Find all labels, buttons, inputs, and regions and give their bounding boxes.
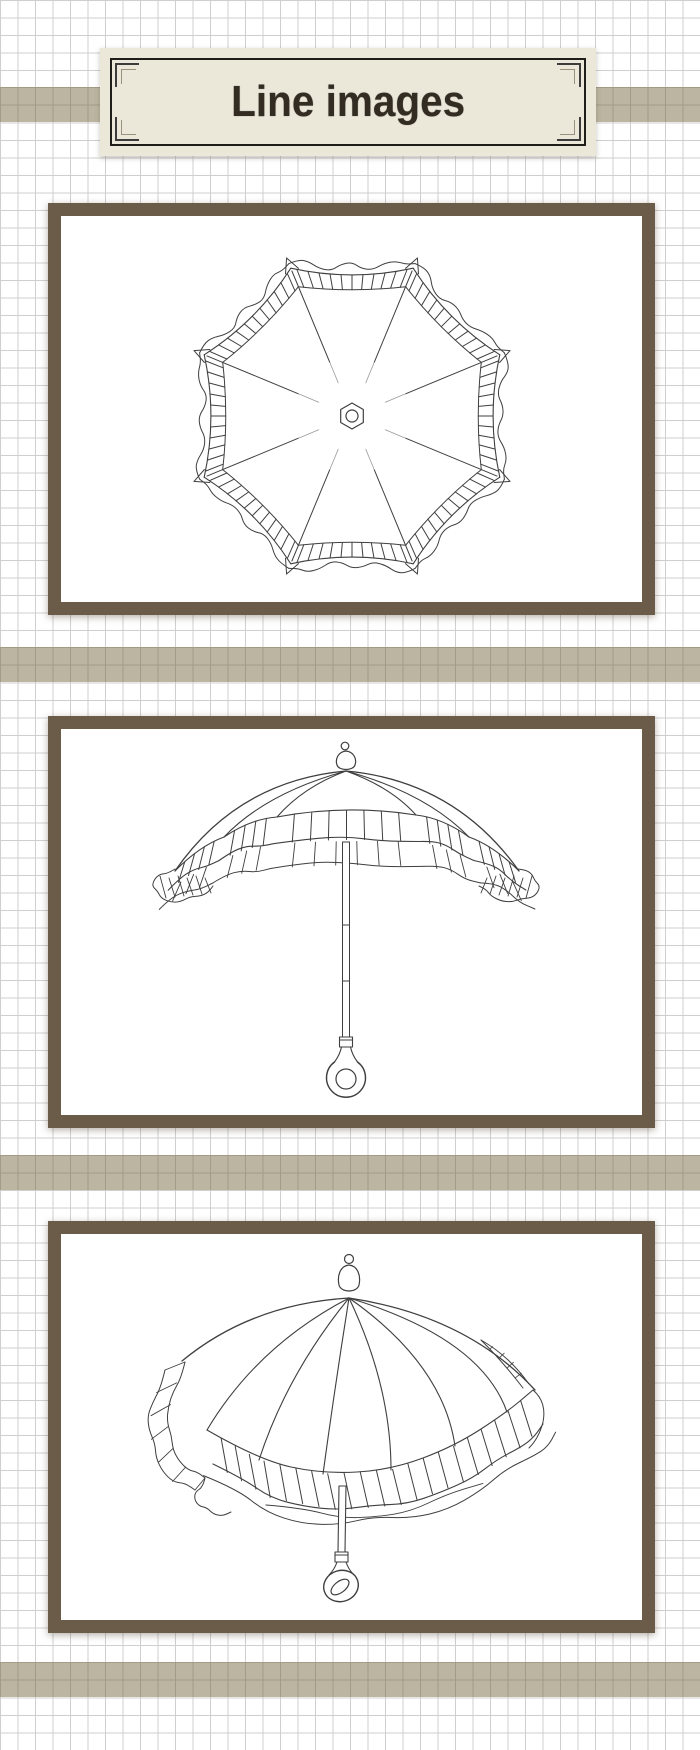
corner-ornament-bottom-right-icon bbox=[559, 119, 581, 141]
parasol-side-view-drawing bbox=[61, 729, 642, 1115]
decor-grid-stripe-3 bbox=[0, 1155, 700, 1190]
corner-ornament-bottom-left-icon bbox=[115, 119, 137, 141]
decor-grid-stripe-2 bbox=[0, 647, 700, 682]
title-plate: Line images bbox=[100, 48, 596, 156]
decor-grid-stripe-4 bbox=[0, 1662, 700, 1697]
framed-image-parasol-side-view[interactable] bbox=[48, 716, 655, 1128]
corner-ornament-top-right-icon bbox=[559, 63, 581, 85]
page-title: Line images bbox=[231, 80, 465, 124]
page: Line images bbox=[0, 0, 700, 1750]
framed-image-parasol-top-view[interactable] bbox=[48, 203, 655, 615]
title-plate-border: Line images bbox=[110, 58, 586, 146]
parasol-three-quarter-view-drawing bbox=[61, 1234, 642, 1620]
framed-image-parasol-three-quarter-view[interactable] bbox=[48, 1221, 655, 1633]
corner-ornament-top-left-icon bbox=[115, 63, 137, 85]
parasol-top-view-drawing bbox=[61, 216, 642, 602]
